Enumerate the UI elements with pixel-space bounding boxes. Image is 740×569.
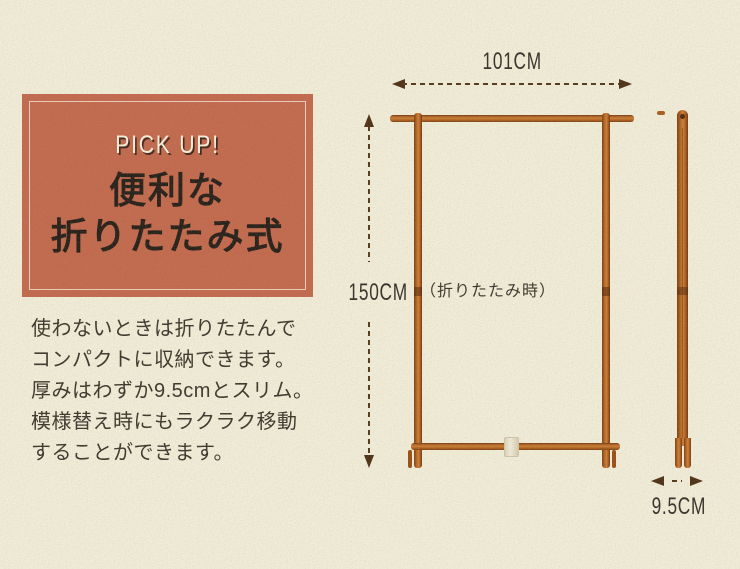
dashed-line — [672, 480, 682, 482]
pickup-title-line2: 折りたたみ式 — [51, 214, 285, 260]
rack-right-foot — [612, 450, 616, 468]
folded-rack-left-leg — [675, 438, 682, 468]
description-line: コンパクトに収納できます。 — [31, 345, 336, 376]
height-dimension-label: 150CM — [337, 279, 401, 307]
description-line: 使わないときは折りたたんで — [31, 314, 336, 345]
description-text: 使わないときは折りたたんで コンパクトに収納できます。 厚みはわずか9.5cmと… — [31, 314, 336, 469]
folded-rack-pivot-screw — [680, 114, 685, 119]
pickup-title-line1: 便利な — [109, 168, 226, 214]
rack-strap-clip — [504, 437, 519, 457]
depth-dimension-label: 9.5CM — [641, 493, 713, 521]
arrowhead-down-icon — [364, 455, 374, 468]
rack-right-hinge — [602, 287, 610, 296]
promo-banner: PICK UP! 便利な 折りたたみ式 使わないときは折りたたんで コンパクトに… — [0, 0, 740, 569]
width-dimension-arrow — [392, 78, 632, 90]
description-line: 厚みはわずか9.5cmとスリム。 — [31, 376, 336, 407]
rack-left-hinge — [414, 287, 422, 296]
dashed-line — [402, 83, 622, 85]
dashed-line — [368, 322, 370, 456]
rack-top-bar — [390, 115, 634, 122]
arrowhead-right-icon — [690, 476, 703, 486]
rack-left-foot — [408, 450, 412, 468]
arrowhead-right-icon — [619, 79, 632, 89]
pickup-box: PICK UP! 便利な 折りたたみ式 — [22, 94, 313, 297]
pickup-tagline: PICK UP! — [115, 131, 220, 160]
folded-rack-right-leg — [684, 438, 691, 468]
folded-state-label: （折りたたみ時） — [420, 277, 550, 301]
folded-rack-hinge — [677, 287, 688, 295]
description-line: することができます。 — [31, 438, 336, 469]
width-dimension-label: 101CM — [392, 48, 632, 76]
depth-dimension-arrow — [651, 475, 703, 487]
folded-rack-seam — [682, 128, 683, 438]
folded-rack-bar-stub — [657, 111, 665, 115]
arrowhead-left-icon — [651, 476, 664, 486]
description-line: 模様替え時にもラクラク移動 — [31, 407, 336, 438]
dashed-line — [368, 126, 370, 262]
